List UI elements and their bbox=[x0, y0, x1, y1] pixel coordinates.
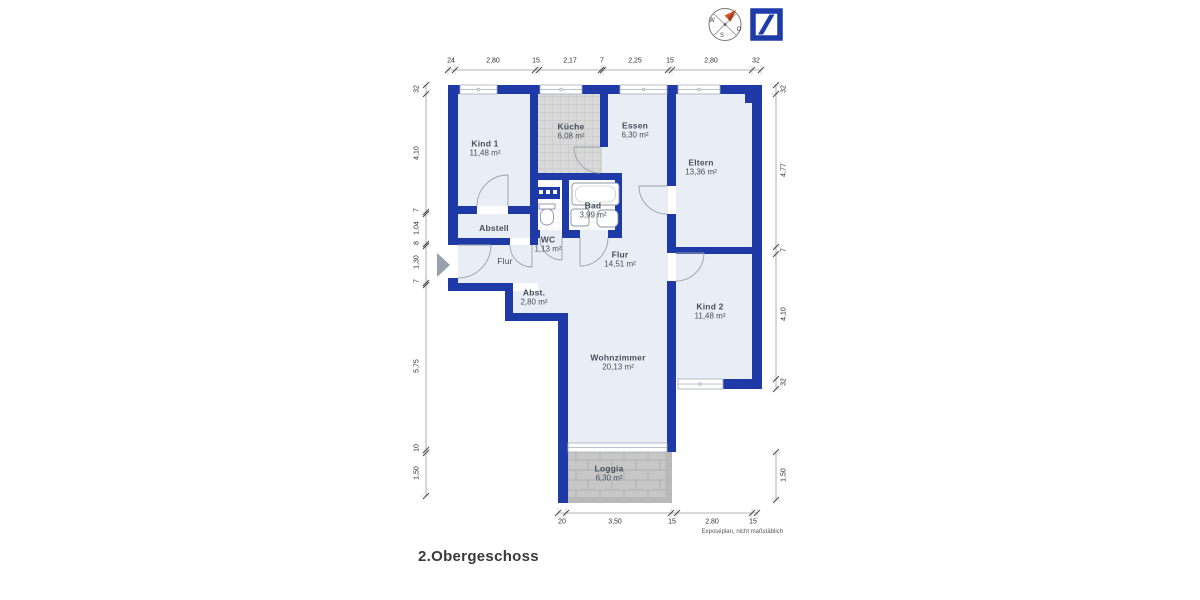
room-label-essen: Essen 6,30 m² bbox=[621, 120, 648, 139]
dim-bottom-1: 20 bbox=[558, 519, 566, 526]
room-label-abst: Abst. 2,80 m² bbox=[520, 287, 547, 306]
entrance-arrow-icon bbox=[437, 253, 450, 277]
dim-left-9: 10 bbox=[414, 444, 421, 452]
dim-left-3: 7 bbox=[414, 208, 421, 212]
dim-left-6: 1,30 bbox=[414, 255, 421, 269]
dim-top-4: 2,17 bbox=[563, 58, 577, 65]
dim-right-3: 7 bbox=[781, 248, 788, 252]
compass-south-label: S bbox=[720, 33, 724, 39]
dim-top-6: 2,25 bbox=[628, 58, 642, 65]
room-label-kind1: Kind 1 11,48 m² bbox=[470, 138, 501, 157]
dim-top-2: 2,80 bbox=[486, 58, 500, 65]
dim-right-5: 32 bbox=[781, 378, 788, 386]
floor-plan-page: Kind 1 11,48 m² Küche 6,08 m² Essen 6,30… bbox=[0, 0, 1200, 600]
dim-bottom-5: 15 bbox=[749, 519, 757, 526]
dim-right-2: 4,77 bbox=[781, 163, 788, 177]
room-label-kueche: Küche 6,08 m² bbox=[557, 121, 584, 140]
dim-top-3: 15 bbox=[532, 58, 540, 65]
dim-right-1: 32 bbox=[781, 85, 788, 93]
compass-west-label: W bbox=[709, 18, 715, 24]
toilet bbox=[541, 209, 554, 225]
dim-left-7: 7 bbox=[414, 279, 421, 283]
brand-logo bbox=[753, 11, 780, 38]
dim-left-8: 5,75 bbox=[414, 359, 421, 373]
dim-bottom-3: 15 bbox=[668, 519, 676, 526]
dim-top-9: 32 bbox=[752, 58, 760, 65]
scale-disclaimer: Exposéplan, nicht maßstäblich bbox=[702, 529, 783, 535]
room-label-bad: Bad 3,99 m² bbox=[579, 200, 606, 219]
floor-plan-drawing bbox=[0, 0, 1200, 600]
room-label-wohnzimmer: Wohnzimmer 20,13 m² bbox=[590, 352, 645, 371]
compass-icon bbox=[709, 9, 741, 41]
page-title: 2.Obergeschoss bbox=[418, 548, 539, 565]
dim-top-7: 15 bbox=[666, 58, 674, 65]
dim-top-1: 24 bbox=[447, 58, 455, 65]
room-label-flur: Flur 14,51 m² bbox=[604, 249, 636, 268]
dim-top-8: 2,80 bbox=[704, 58, 718, 65]
toilet-tank bbox=[539, 204, 555, 209]
dim-left-5: 8 bbox=[414, 241, 421, 245]
room-label-eltern: Eltern 13,36 m² bbox=[685, 157, 717, 176]
room-label-wc: WC 1,13 m² bbox=[534, 234, 561, 253]
dim-left-4: 1,04 bbox=[414, 221, 421, 235]
dim-top-5: 7 bbox=[600, 58, 604, 65]
dim-right-4: 4,10 bbox=[781, 307, 788, 321]
room-label-kind2: Kind 2 11,48 m² bbox=[695, 301, 726, 320]
dim-bottom-2: 3,50 bbox=[608, 519, 622, 526]
room-label-flur-klein: Flur bbox=[497, 256, 512, 266]
dim-left-10: 1,50 bbox=[414, 466, 421, 480]
dim-right-loggia: 1,50 bbox=[781, 468, 788, 482]
dim-left-2: 4,10 bbox=[414, 146, 421, 160]
room-label-loggia: Loggia 6,30 m² bbox=[594, 463, 623, 482]
dim-left-1: 32 bbox=[414, 85, 421, 93]
compass-east-label: O bbox=[737, 27, 742, 33]
room-label-abstell: Abstell bbox=[479, 223, 509, 233]
dim-bottom-4: 2,80 bbox=[705, 519, 719, 526]
